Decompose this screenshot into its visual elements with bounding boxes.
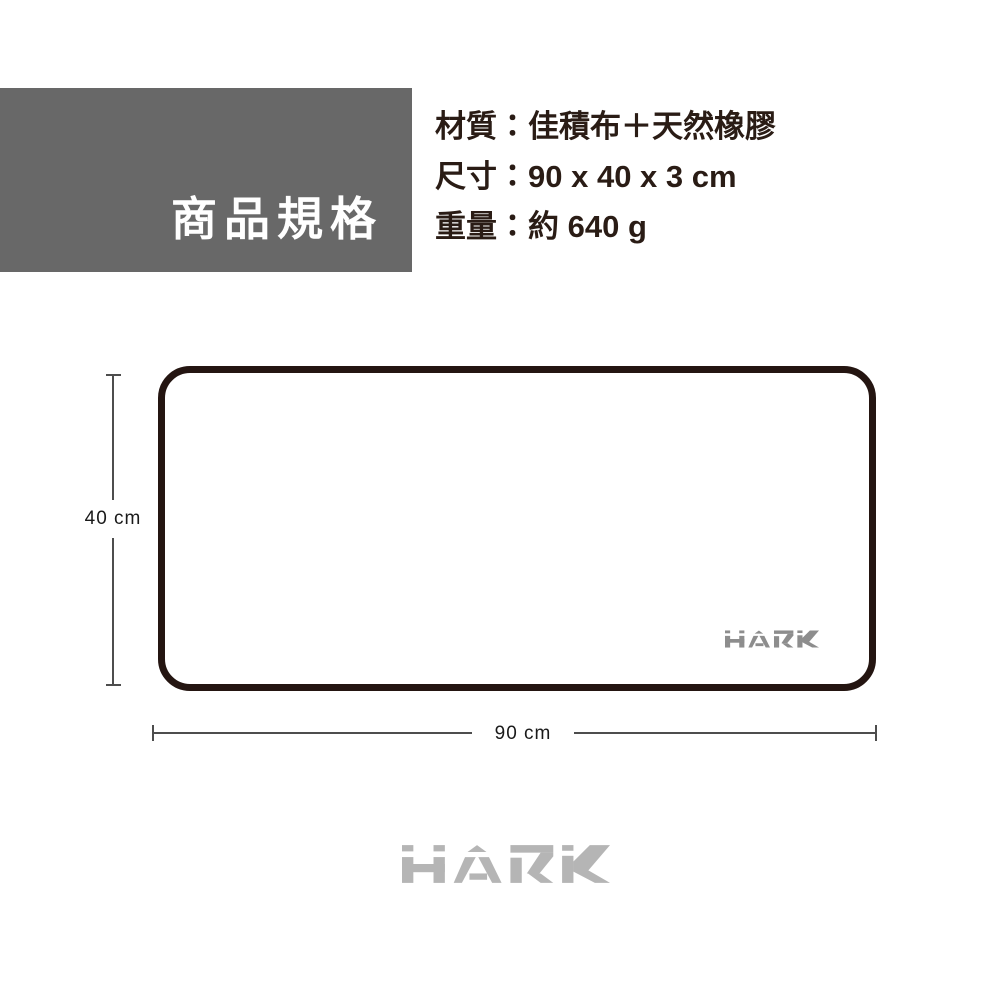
spec-line-weight: 重量：約 640 g — [435, 202, 776, 252]
spec-line-material: 材質：佳積布＋天然橡膠 — [435, 102, 776, 152]
hark-logo-icon — [725, 630, 819, 648]
width-dimension-label: 90 cm — [495, 723, 552, 745]
spec-header: 商品規格 — [0, 88, 412, 272]
product-spec-image: 商品規格 材質：佳積布＋天然橡膠 尺寸：90 x 40 x 3 cm 重量：約 … — [0, 0, 1000, 1000]
dim-cap — [106, 684, 121, 686]
height-dimension-label: 40 cm — [85, 508, 142, 530]
dim-line-segment — [112, 538, 114, 684]
dim-cap — [875, 725, 877, 741]
spec-line-size: 尺寸：90 x 40 x 3 cm — [435, 152, 776, 202]
spec-list: 材質：佳積布＋天然橡膠 尺寸：90 x 40 x 3 cm 重量：約 640 g — [435, 102, 776, 252]
dim-line-segment — [112, 376, 114, 500]
hark-logo-icon — [402, 845, 610, 883]
dim-line-segment — [574, 732, 875, 734]
spec-title: 商品規格 — [171, 196, 383, 242]
dim-line-segment — [154, 732, 472, 734]
